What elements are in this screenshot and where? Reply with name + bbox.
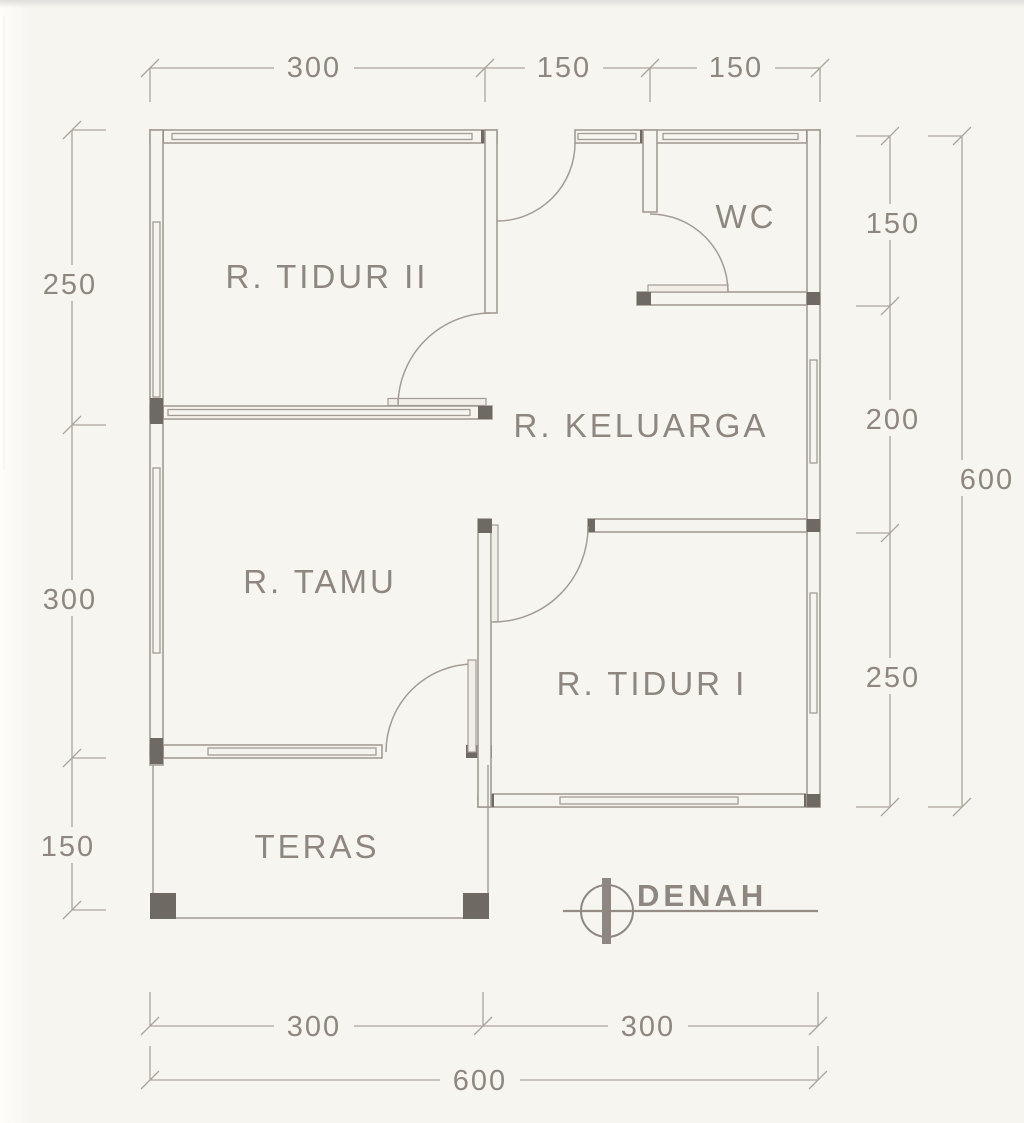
post bbox=[807, 794, 820, 807]
wall-wc-left bbox=[643, 130, 657, 212]
dimension-right-inner: 150 200 250 bbox=[853, 127, 931, 816]
wall-top-right bbox=[575, 130, 820, 143]
room-label-wc: WC bbox=[716, 198, 777, 235]
wall-tamu-front bbox=[150, 745, 382, 758]
post bbox=[807, 519, 820, 532]
dim-bottom-1: 300 bbox=[287, 1011, 341, 1043]
post bbox=[807, 292, 820, 305]
post bbox=[478, 406, 492, 419]
door-arcs bbox=[386, 143, 728, 752]
dim-left-2: 300 bbox=[43, 584, 97, 616]
room-label-tamu: R. TAMU bbox=[243, 563, 397, 600]
room-label-keluarga: R. KELUARGA bbox=[514, 407, 769, 444]
dim-right-1: 150 bbox=[866, 208, 920, 240]
post bbox=[478, 519, 492, 533]
door-leaf-tamu-front bbox=[468, 660, 476, 752]
door-arc-entrance bbox=[497, 143, 575, 221]
dim-bottom-total: 600 bbox=[453, 1065, 507, 1097]
door-arc-tidur2 bbox=[398, 313, 491, 406]
wall-tidur1-bottom bbox=[478, 794, 820, 807]
wall-top-tidur2 bbox=[150, 130, 497, 143]
dim-bottom-2: 300 bbox=[621, 1011, 675, 1043]
dimension-bottom-outer: 600 bbox=[141, 1046, 827, 1097]
room-label-tidur2: R. TIDUR II bbox=[226, 258, 429, 295]
drawing-title: DENAH bbox=[563, 878, 818, 944]
page-title: DENAH bbox=[637, 878, 767, 913]
teras-post-right bbox=[463, 893, 489, 919]
door-leaf-tidur2 bbox=[388, 399, 486, 406]
door-arc-tidur1 bbox=[493, 527, 588, 622]
wall-tidur2-right bbox=[485, 130, 497, 313]
post bbox=[637, 292, 651, 305]
door-arc-tamu-front bbox=[386, 664, 474, 752]
wall-tidur1-left bbox=[478, 519, 491, 807]
scanned-floor-plan-page: R. TIDUR II WC R. KELUARGA R. TAMU R. TI… bbox=[0, 0, 1024, 1123]
dim-top-2: 150 bbox=[537, 52, 591, 84]
wall-divider-tidur2-tamu bbox=[150, 406, 492, 419]
floor-plan-drawing: R. TIDUR II WC R. KELUARGA R. TAMU R. TI… bbox=[0, 0, 1024, 1123]
dim-right-total: 600 bbox=[960, 464, 1014, 496]
post bbox=[150, 398, 163, 424]
post bbox=[150, 738, 163, 764]
door-leaf-wc bbox=[648, 285, 728, 292]
dim-left-3: 150 bbox=[41, 831, 95, 863]
wall-tidur1-top bbox=[588, 519, 820, 532]
dim-right-3: 250 bbox=[866, 662, 920, 694]
room-label-tidur1: R. TIDUR I bbox=[557, 665, 748, 702]
wall-end-cap bbox=[588, 519, 595, 532]
dim-right-2: 200 bbox=[866, 404, 920, 436]
dim-top-1: 300 bbox=[287, 52, 341, 84]
dim-left-1: 250 bbox=[43, 269, 97, 301]
dimension-bottom-inner: 300 300 bbox=[141, 992, 827, 1043]
dimension-right-outer: 600 bbox=[928, 127, 1024, 816]
wall-wc-bottom bbox=[637, 292, 820, 305]
wall-left-exterior bbox=[150, 130, 163, 765]
wall-right-exterior bbox=[807, 130, 820, 807]
dimension-left: 250 300 150 bbox=[28, 121, 110, 919]
dimension-top: 300 150 150 bbox=[141, 48, 829, 102]
dim-top-3: 150 bbox=[709, 52, 763, 84]
teras-post-left bbox=[150, 893, 176, 919]
room-label-teras: TERAS bbox=[254, 828, 379, 865]
door-leaf-tidur1 bbox=[491, 525, 498, 622]
title-mark-bar bbox=[602, 878, 611, 944]
